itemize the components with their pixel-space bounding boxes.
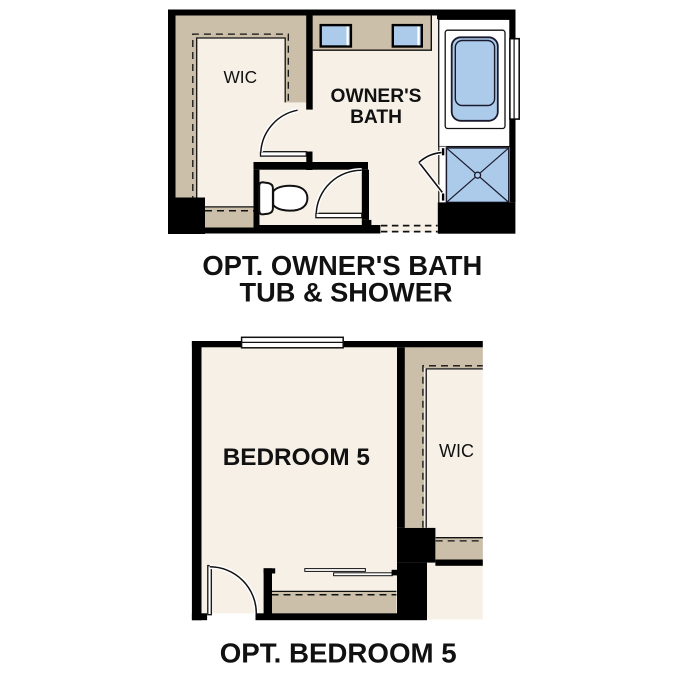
svg-text:WIC: WIC bbox=[224, 67, 258, 87]
svg-text:OWNER'S: OWNER'S bbox=[331, 86, 422, 107]
svg-text:TUB & SHOWER: TUB & SHOWER bbox=[240, 277, 453, 308]
svg-text:BATH: BATH bbox=[350, 107, 402, 128]
svg-text:WIC: WIC bbox=[439, 441, 474, 461]
svg-text:BEDROOM 5: BEDROOM 5 bbox=[223, 444, 370, 471]
svg-text:OPT. BEDROOM 5: OPT. BEDROOM 5 bbox=[220, 637, 457, 668]
